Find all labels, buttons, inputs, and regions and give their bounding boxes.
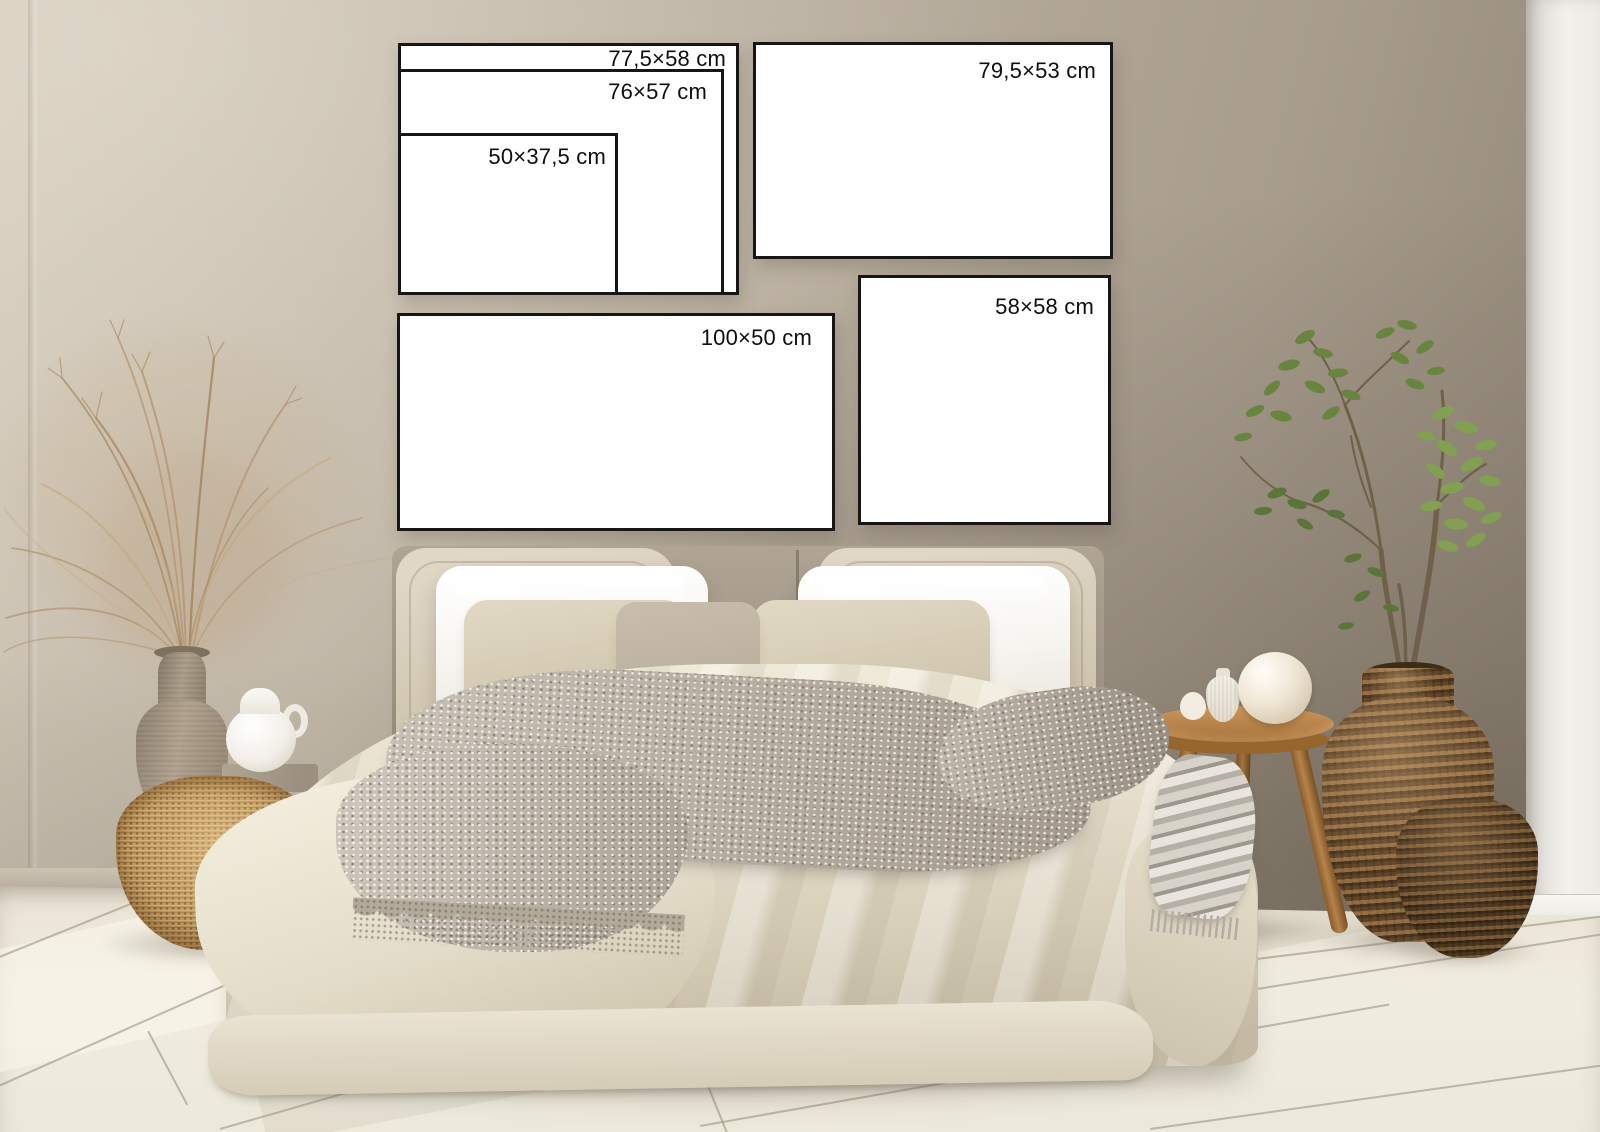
plant-leaves-lower: [1254, 485, 1400, 630]
frame-size-label: 79,5×53 cm: [978, 58, 1096, 83]
frame-50x37-5: 50×37,5 cm: [398, 133, 618, 295]
plant-leaves-upper: [1233, 318, 1445, 443]
frame-58x58: 58×58 cm: [858, 275, 1111, 525]
floor-seam: [147, 1031, 188, 1106]
frame-size-label: 76×57 cm: [608, 79, 707, 104]
frame-size-label: 100×50 cm: [701, 325, 812, 350]
bedroom-mockup-scene: 77,5×58 cm 76×57 cm 50×37,5 cm 79,5×53 c…: [0, 0, 1600, 1132]
frame-size-label: 58×58 cm: [995, 294, 1094, 319]
cream-sphere-vase: [1238, 652, 1312, 724]
frame-size-label: 77,5×58 cm: [608, 46, 726, 71]
white-jug-body: [226, 706, 296, 772]
branch-plant: [1185, 295, 1505, 695]
wooden-stool-top: [1146, 706, 1334, 742]
duvet-floor-hem: [207, 1000, 1153, 1096]
white-jug-neck: [240, 688, 280, 714]
plant-branches: [1241, 336, 1486, 690]
pampas-grass: [0, 300, 420, 680]
frame-100x50: 100×50 cm: [397, 313, 835, 531]
frame-size-label: 50×37,5 cm: [488, 144, 606, 169]
white-wall-corner: [1526, 0, 1600, 935]
small-egg-vase: [1180, 692, 1206, 720]
plant-leaves-right: [1415, 403, 1503, 554]
frame-79-5x53: 79,5×53 cm: [753, 42, 1113, 259]
